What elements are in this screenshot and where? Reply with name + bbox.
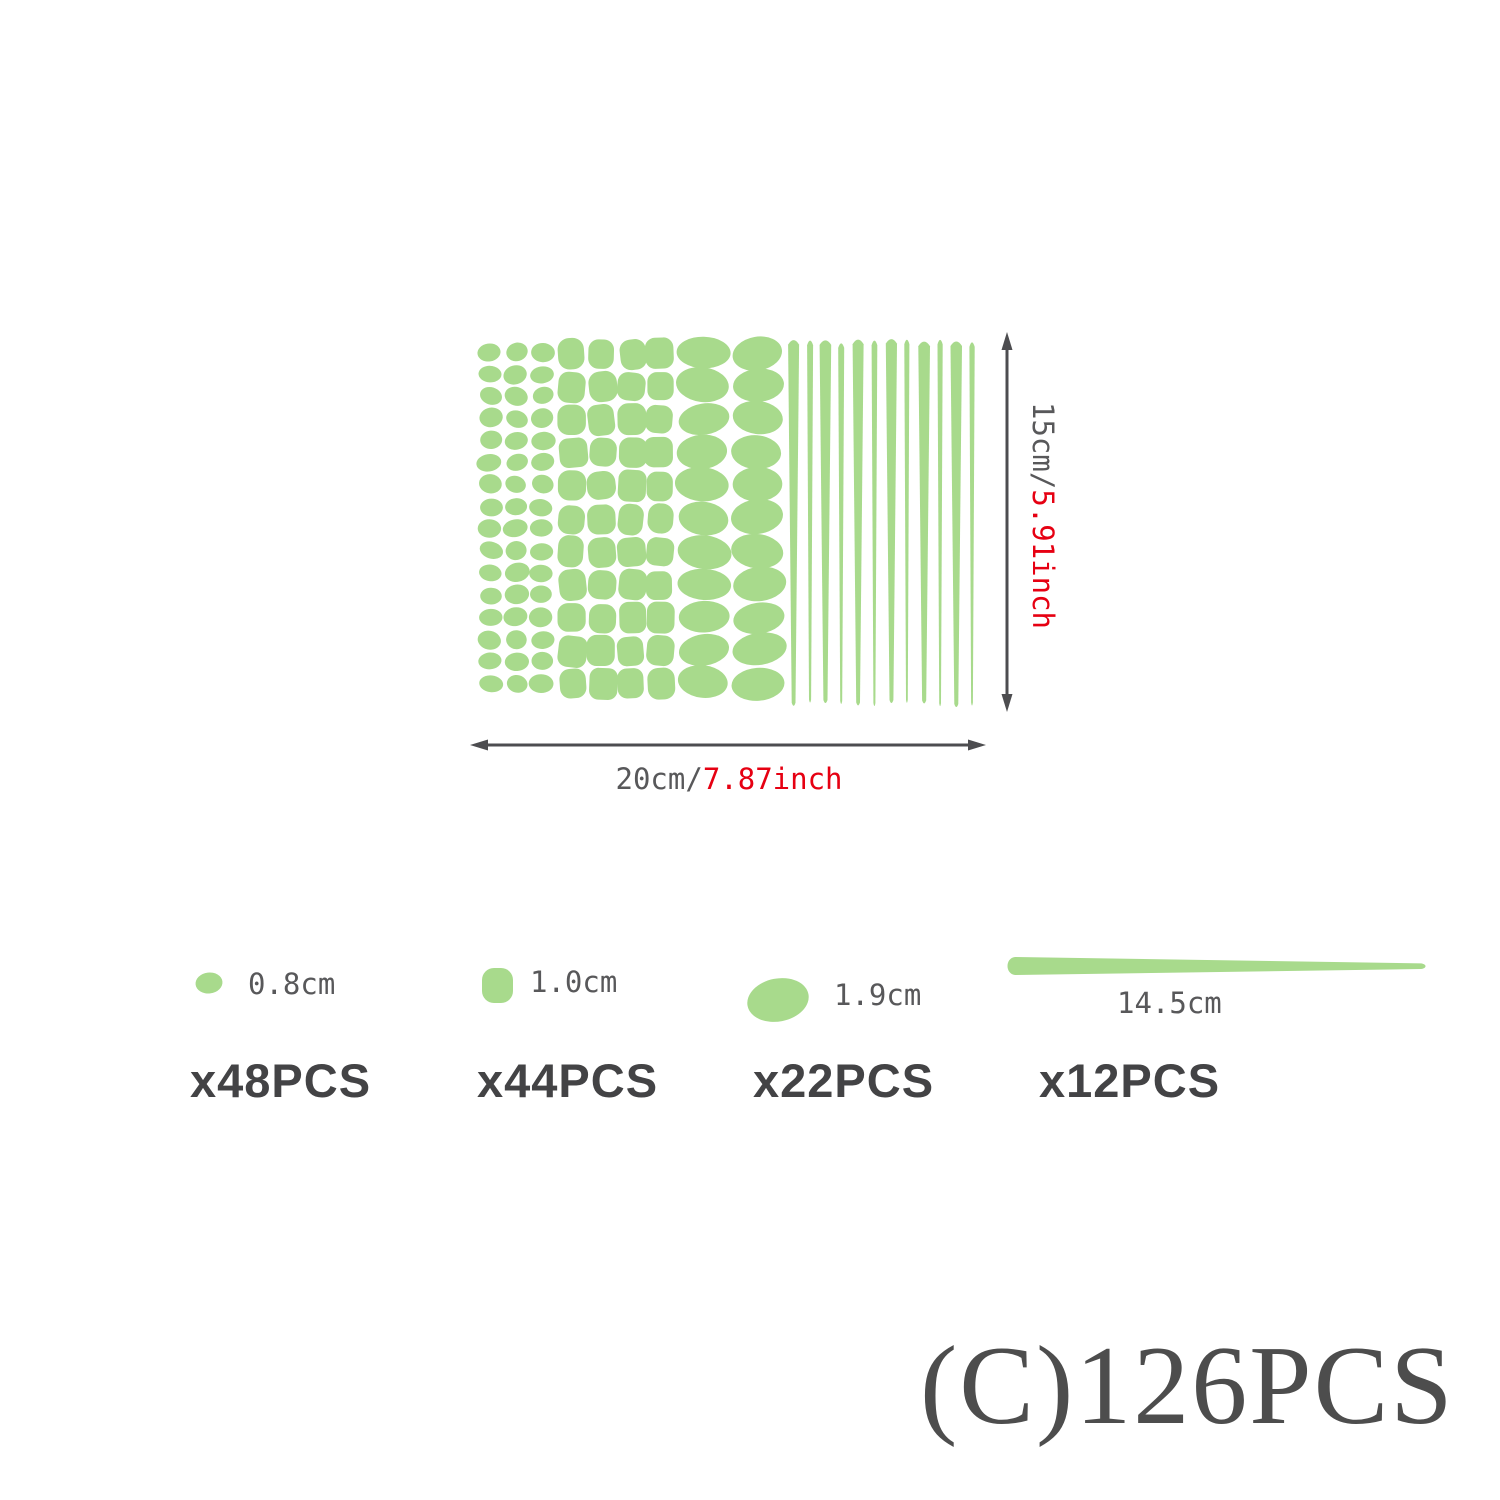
legend-small-dot-icon — [192, 970, 226, 998]
height-inch-text: 5.91inch — [1026, 489, 1060, 629]
sticker-sheet-graphic — [472, 332, 982, 712]
variant-total-label: (C)126PCS — [920, 1322, 1455, 1451]
height-dimension-arrow — [996, 330, 1018, 714]
arrowhead-left-icon — [470, 740, 488, 751]
legend-count-stripe: x12PCS — [1039, 1053, 1220, 1108]
width-dimension-label: 20cm/7.87inch — [472, 762, 986, 796]
height-dimension-label: 15cm/5.91inch — [1026, 402, 1060, 629]
legend-count-large: x22PCS — [753, 1053, 934, 1108]
legend-medium-dot-icon — [479, 965, 517, 1007]
legend-size-large: 1.9cm — [834, 978, 921, 1012]
legend-size-small: 0.8cm — [248, 967, 335, 1001]
width-dimension-arrow — [468, 734, 988, 756]
arrowhead-right-icon — [968, 740, 986, 751]
height-cm-text: 15cm/ — [1026, 402, 1060, 489]
width-cm-text: 20cm/ — [616, 762, 703, 796]
legend-count-small: x48PCS — [190, 1053, 371, 1108]
legend-size-stripe: 14.5cm — [1117, 986, 1222, 1020]
legend-size-medium: 1.0cm — [530, 965, 617, 999]
product-size-infographic: 15cm/5.91inch 20cm/7.87inch 0.8cm 1.0cm … — [0, 0, 1500, 1500]
width-inch-text: 7.87inch — [703, 762, 843, 796]
arrowhead-down-icon — [1002, 694, 1013, 712]
legend-count-medium: x44PCS — [477, 1053, 658, 1108]
arrowhead-up-icon — [1002, 332, 1013, 350]
legend-stripe-icon — [1003, 953, 1431, 981]
legend-large-dot-icon — [744, 974, 814, 1026]
